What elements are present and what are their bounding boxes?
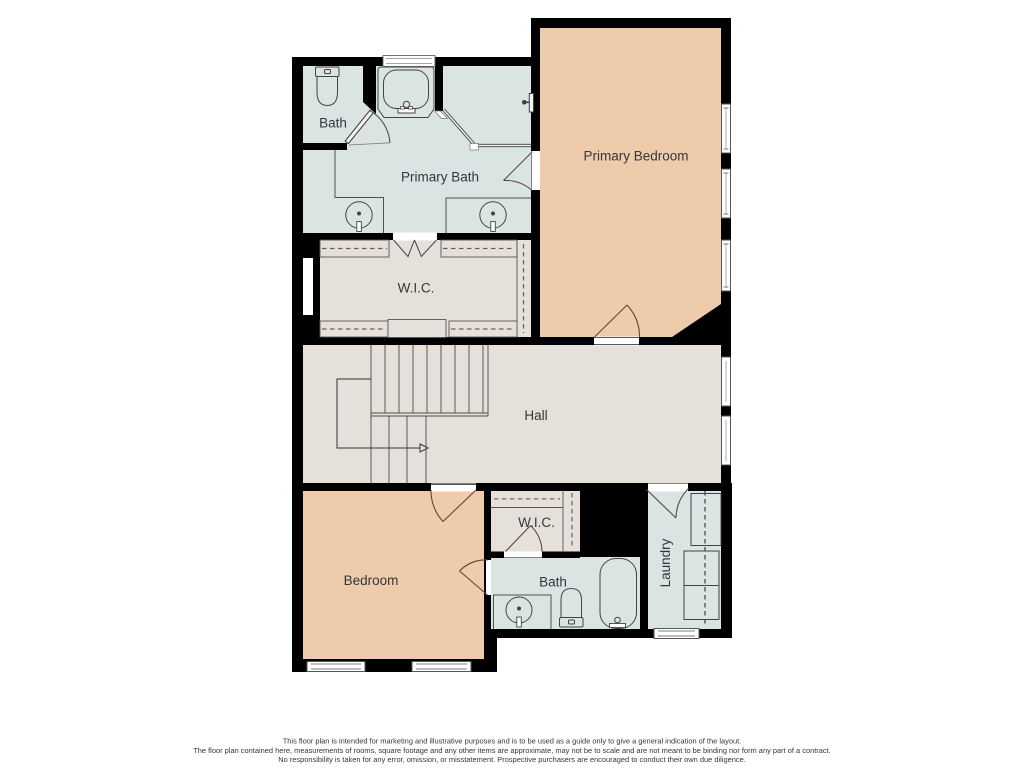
svg-text:Bath: Bath: [539, 575, 567, 590]
svg-text:Laundry: Laundry: [658, 538, 673, 587]
svg-text:This floor plan is intended fo: This floor plan is intended for marketin…: [283, 737, 742, 746]
svg-text:Primary Bedroom: Primary Bedroom: [583, 149, 688, 164]
svg-text:Bedroom: Bedroom: [344, 573, 399, 588]
svg-text:W.I.C.: W.I.C.: [518, 515, 555, 530]
svg-text:Hall: Hall: [524, 408, 547, 423]
svg-text:Bath: Bath: [319, 116, 347, 131]
svg-text:Primary Bath: Primary Bath: [401, 170, 479, 185]
svg-text:W.I.C.: W.I.C.: [398, 281, 435, 296]
svg-text:The floor plan contained here,: The floor plan contained here, measureme…: [193, 746, 831, 755]
svg-text:No responsibility is taken for: No responsibility is taken for any error…: [278, 755, 746, 764]
